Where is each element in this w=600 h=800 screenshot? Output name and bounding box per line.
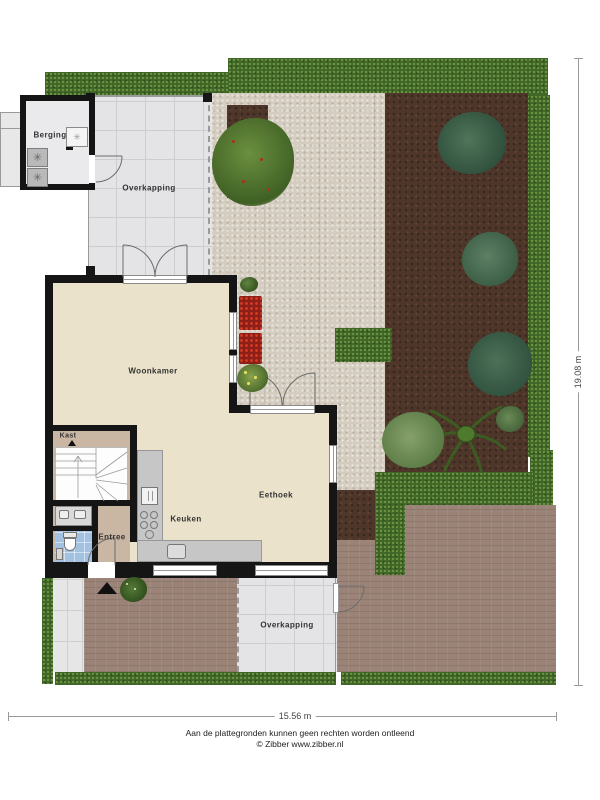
garden-bush-2 bbox=[462, 232, 518, 286]
bush-top-path bbox=[212, 118, 294, 206]
overkapping-post-sw bbox=[86, 266, 95, 275]
room-label-keuken: Keuken bbox=[170, 515, 201, 524]
overkapping-post-ne bbox=[203, 93, 212, 102]
hedge-right bbox=[526, 95, 550, 457]
room-label-eethoek: Eethoek bbox=[259, 491, 293, 500]
garden-bush-1 bbox=[438, 112, 506, 174]
wall-north-right bbox=[187, 275, 237, 283]
room-label-overkapping-top: Overkapping bbox=[122, 184, 175, 193]
overkapping-top-edge-line bbox=[88, 95, 212, 97]
garden-bush-4 bbox=[382, 412, 444, 468]
washing-machine-icon: ✳ bbox=[27, 148, 48, 167]
hedge-right-block bbox=[530, 450, 553, 505]
footer-credit: © Zibber www.zibber.nl bbox=[256, 739, 343, 749]
hedge-strip-patio-left bbox=[375, 505, 405, 575]
window-woonkamer-east-2 bbox=[229, 355, 237, 383]
footer-disclaimer: Aan de plattegronden kunnen geen rechten… bbox=[186, 728, 415, 738]
dimension-tick bbox=[574, 685, 583, 686]
stairs bbox=[55, 447, 128, 502]
fridge-handle bbox=[66, 147, 73, 150]
bush-yellow-flowers bbox=[237, 364, 268, 392]
entry-bush bbox=[120, 577, 147, 602]
wall-eethoek-east bbox=[329, 405, 337, 578]
hedge-mid-block bbox=[335, 328, 392, 362]
hedge-left-bottom bbox=[42, 578, 53, 684]
overkapping-bottom-door-jamb bbox=[333, 583, 339, 613]
hedge-top-right bbox=[228, 58, 548, 98]
flower-planter-1 bbox=[239, 296, 262, 330]
washing-machine-icon: ✳ bbox=[27, 168, 48, 187]
soil-patch-right bbox=[337, 490, 375, 540]
stove-icon bbox=[139, 510, 159, 538]
wall-north-left bbox=[45, 275, 123, 283]
wall-block-east bbox=[130, 425, 137, 542]
room-label-overkapping-bottom: Overkapping bbox=[260, 621, 313, 630]
hedge-strip-garden-south bbox=[375, 472, 533, 505]
washbasin-sink-icon bbox=[74, 510, 86, 519]
room-label-entree: Entree bbox=[98, 533, 125, 542]
overkapping-bottom-dashed-edge bbox=[237, 578, 239, 672]
hedge-top-left bbox=[45, 72, 228, 95]
room-label-kast: Kast bbox=[60, 433, 77, 440]
front-door-opening bbox=[88, 562, 115, 578]
room-label-berging: Berging bbox=[33, 131, 66, 140]
window-eethoek-east bbox=[329, 445, 337, 483]
garden-bush-3 bbox=[468, 332, 532, 396]
wall-toilet-east bbox=[92, 506, 98, 562]
kitchen-counter-horizontal bbox=[137, 540, 262, 562]
garden-bush-5 bbox=[496, 406, 524, 432]
room-label-woonkamer: Woonkamer bbox=[128, 367, 177, 376]
toilet-bowl-icon bbox=[64, 538, 76, 551]
floorplan-canvas: ✳ ✳ ✳ bbox=[0, 0, 600, 800]
wall-eethoek-north-left bbox=[237, 405, 250, 413]
dimension-height-label: 19.08 m bbox=[573, 352, 583, 393]
fridge-icon: ✳ bbox=[66, 127, 88, 147]
wall-west bbox=[45, 275, 53, 578]
toilet-sink-icon bbox=[56, 548, 63, 560]
door-threshold-eethoek bbox=[250, 405, 315, 414]
washbasin-sink-icon bbox=[59, 510, 69, 519]
overkapping-top-dashed-edge bbox=[208, 95, 210, 275]
kast-loft-arrow-icon bbox=[68, 440, 76, 446]
dimension-tick bbox=[574, 58, 583, 59]
window-woonkamer-east-1 bbox=[229, 312, 237, 350]
flower-planter-2 bbox=[239, 333, 262, 364]
window-keuken-south bbox=[153, 565, 217, 576]
side-path-bottom-left bbox=[53, 578, 84, 672]
wall-kast-top bbox=[53, 425, 130, 431]
overkapping-west-line bbox=[88, 190, 89, 270]
oven-icon bbox=[141, 487, 158, 505]
dimension-tick bbox=[556, 712, 557, 721]
berging-door-opening bbox=[89, 155, 95, 183]
door-threshold-overkapping bbox=[123, 275, 187, 284]
bush-small-green bbox=[240, 277, 258, 292]
dimension-tick bbox=[8, 712, 9, 721]
hedge-bottom-right bbox=[341, 672, 556, 685]
window-eethoek-south bbox=[255, 565, 328, 576]
north-arrow-icon bbox=[97, 582, 117, 594]
sink-icon bbox=[167, 544, 186, 559]
hedge-bottom-left bbox=[55, 672, 336, 685]
dimension-width-label: 15.56 m bbox=[275, 711, 316, 721]
